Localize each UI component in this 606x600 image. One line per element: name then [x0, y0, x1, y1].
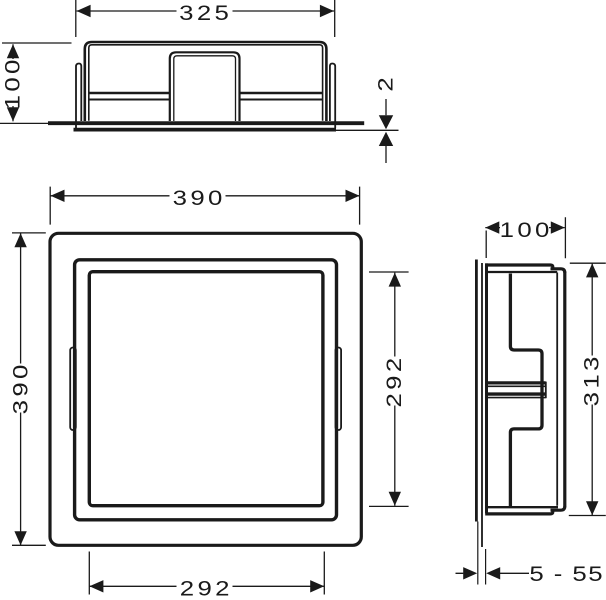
svg-text:100: 100: [2, 56, 26, 109]
svg-text:2: 2: [374, 77, 398, 91]
svg-text:5 - 55: 5 - 55: [529, 563, 604, 587]
svg-text:292: 292: [180, 577, 233, 600]
svg-text:390: 390: [173, 187, 226, 211]
svg-text:390: 390: [9, 361, 33, 414]
svg-text:325: 325: [179, 2, 232, 26]
svg-text:100: 100: [500, 219, 553, 243]
svg-text:292: 292: [383, 354, 407, 407]
svg-text:313: 313: [580, 353, 604, 406]
